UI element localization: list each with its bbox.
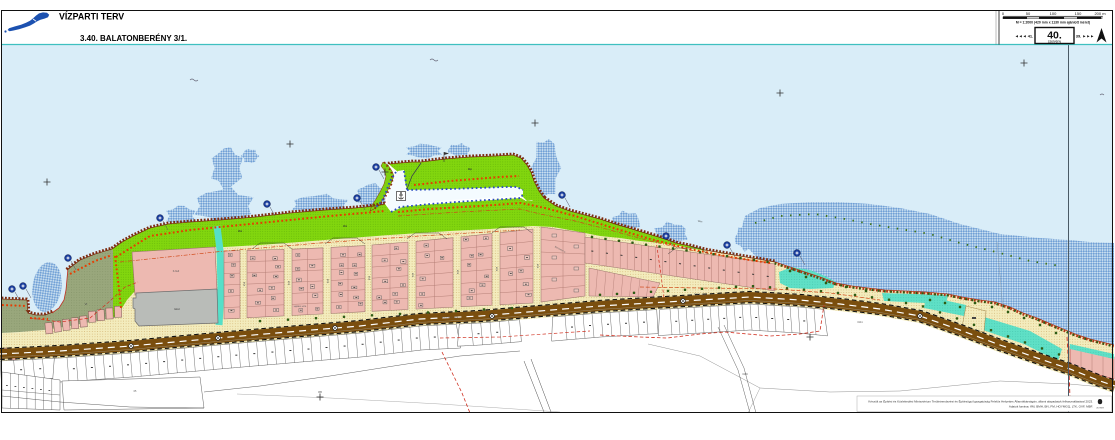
svg-text:Kossuth L. utca: Kossuth L. utca — [442, 316, 459, 319]
svg-text:M = 1:2000 (420 mm x 1130 mm: M = 1:2000 (420 mm x 1130 mm ajánlott mé… — [1016, 21, 1090, 25]
svg-text:Gksz: Gksz — [174, 308, 180, 311]
svg-text:◄◄◄ 41.: ◄◄◄ 41. — [1015, 34, 1034, 39]
svg-text:utca: utca — [495, 267, 498, 272]
svg-text:utca: utca — [287, 281, 290, 286]
svg-text:Vt: Vt — [85, 302, 88, 306]
svg-text:0166: 0166 — [742, 373, 748, 376]
svg-text:utca: utca — [536, 264, 539, 269]
svg-text:Adatok forrása: ÁM, BMH, BN, F: Adatok forrása: ÁM, BMH, BN, FM, HOYMGQ,… — [1009, 405, 1093, 409]
svg-text:utca: utca — [368, 276, 371, 281]
svg-text:50: 50 — [1026, 11, 1031, 16]
svg-text:0141: 0141 — [857, 321, 863, 324]
svg-text:Halász utca: Halász utca — [294, 305, 307, 308]
svg-text:utca: utca — [456, 270, 459, 275]
svg-text:150: 150 — [1075, 11, 1082, 16]
svg-text:065: 065 — [318, 391, 323, 394]
svg-text:utca: utca — [243, 282, 246, 287]
svg-text:39. ►►►: 39. ►►► — [1076, 34, 1095, 39]
svg-text:100: 100 — [1050, 11, 1057, 16]
svg-text:szelvény: szelvény — [1048, 39, 1061, 43]
svg-text:utca: utca — [326, 279, 329, 284]
svg-text:VÍZPARTI TERV: VÍZPARTI TERV — [59, 12, 124, 22]
svg-text:K-hull: K-hull — [173, 270, 180, 273]
svg-text:utca: utca — [411, 273, 414, 278]
svg-text:Zkp: Zkp — [468, 168, 473, 171]
svg-text:200 m: 200 m — [1094, 11, 1106, 16]
svg-text:Készült az Építési és Közleked: Készült az Építési és Közlekedési Minisz… — [868, 399, 1093, 404]
svg-text:LECHNER: LECHNER — [1096, 408, 1105, 410]
svg-text:3.40. BALATONBERÉNY 3/1.: 3.40. BALATONBERÉNY 3/1. — [80, 34, 187, 43]
